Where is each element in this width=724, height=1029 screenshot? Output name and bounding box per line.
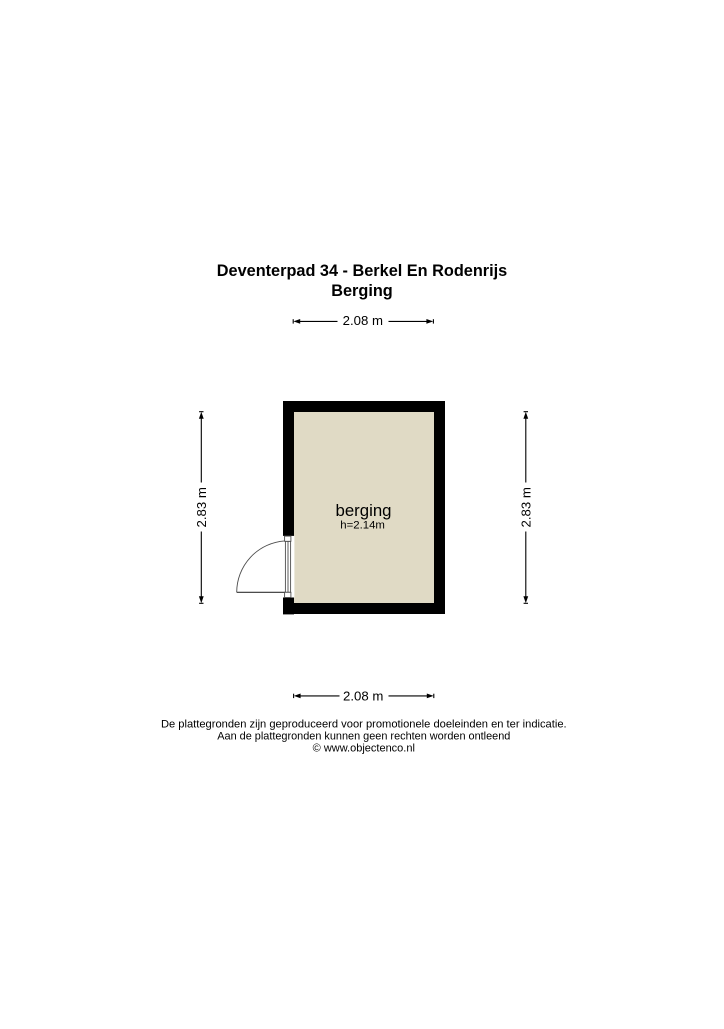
svg-text:berging: berging bbox=[336, 501, 392, 520]
svg-text:h=2.14m: h=2.14m bbox=[340, 519, 385, 531]
svg-text:2.08 m: 2.08 m bbox=[343, 313, 383, 328]
svg-text:Aan de plattegronden kunnen ge: Aan de plattegronden kunnen geen rechten… bbox=[217, 730, 510, 742]
svg-text:2.83 m: 2.83 m bbox=[194, 487, 209, 527]
svg-text:2.08 m: 2.08 m bbox=[343, 688, 383, 703]
svg-text:Deventerpad 34 - Berkel En Rod: Deventerpad 34 - Berkel En Rodenrijs bbox=[217, 262, 507, 280]
svg-text:© www.objectenco.nl: © www.objectenco.nl bbox=[313, 742, 415, 754]
svg-text:Berging: Berging bbox=[331, 282, 393, 300]
svg-text:2.83 m: 2.83 m bbox=[518, 487, 533, 527]
svg-text:De plattegronden zijn geproduc: De plattegronden zijn geproduceerd voor … bbox=[161, 719, 567, 731]
